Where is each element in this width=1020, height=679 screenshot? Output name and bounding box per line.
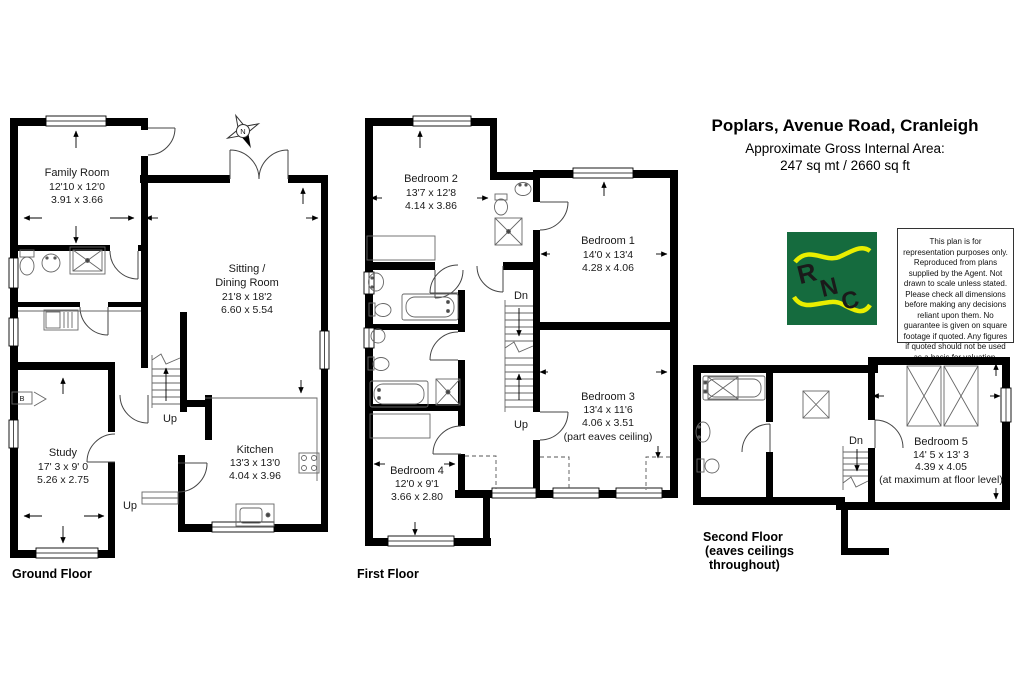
compass: N	[220, 108, 265, 153]
bedroom2-imperial: 13'7 x 12'8	[406, 187, 456, 199]
bedroom5-imperial: 14' 5 x 13' 3	[913, 449, 969, 461]
bedroom4-imperial: 12'0 x 9'1	[395, 478, 439, 490]
door-arc	[742, 424, 770, 452]
second-stairs	[843, 446, 868, 490]
bedroom2-wardrobe	[367, 236, 435, 260]
kitchen-imperial: 13'3 x 13'0	[230, 457, 280, 469]
wardrobe-icon	[944, 366, 978, 426]
ensuite-toilet-icon	[495, 194, 508, 215]
door-arc	[430, 332, 458, 360]
family-room-metric: 3.91 x 3.66	[51, 194, 103, 206]
kitchen-metric: 4.04 x 3.96	[229, 470, 281, 482]
door-arc	[477, 266, 503, 292]
bedroom3-imperial: 13'4 x 11'6	[583, 404, 633, 416]
bedroom4-metric: 3.66 x 2.80	[391, 491, 443, 503]
second-stairs-dn-label: Dn	[849, 435, 863, 447]
floorplans: N Family Room 12'10 x 12'0 3.91 x 3.66 S…	[0, 0, 1020, 679]
sitting-room-metric: 6.60 x 5.54	[221, 304, 273, 316]
boiler-label: B	[19, 394, 24, 403]
eaves-dashed-lines	[465, 456, 670, 490]
bedroom5-name: Bedroom 5	[914, 436, 968, 448]
door-arc	[120, 395, 148, 423]
kitchen-name: Kitchen	[237, 444, 274, 456]
first-stairs-dn-label: Dn	[514, 290, 528, 302]
bedroom3-metric: 4.06 x 3.51	[582, 417, 634, 429]
door-arc	[87, 434, 115, 462]
sitting-room-name2: Dining Room	[215, 277, 279, 289]
ground-step-up-label: Up	[123, 500, 137, 512]
ground-stairs	[142, 354, 180, 504]
stair-break-line	[843, 477, 868, 487]
ground-stairs-up-label: Up	[163, 413, 177, 425]
sitting-room-imperial: 21'8 x 18'2	[222, 291, 272, 303]
french-doors	[230, 150, 288, 179]
landing-shower-icon	[803, 391, 829, 418]
basin-icon	[42, 254, 60, 272]
second-doors	[742, 420, 903, 452]
shower-over-bath-icon	[708, 377, 738, 399]
bedroom5-metric: 4.39 x 4.05	[915, 461, 967, 473]
second-floor-label-2: (eaves ceilings	[705, 544, 794, 558]
bath1-bath-icon	[402, 294, 458, 320]
family-room-name: Family Room	[45, 167, 110, 179]
second-windows	[1001, 388, 1011, 422]
bedroom3-name: Bedroom 3	[581, 391, 635, 403]
shower-icon	[70, 247, 105, 274]
bedroom1-metric: 4.28 x 4.06	[582, 262, 634, 274]
first-floor-label: First Floor	[357, 567, 419, 581]
compass-north-label: N	[240, 127, 245, 136]
ensuite-basin-icon	[515, 183, 531, 196]
door-arc	[875, 420, 903, 448]
study-name: Study	[49, 447, 78, 459]
study-metric: 5.26 x 2.75	[37, 474, 89, 486]
utility-sink-icon	[18, 310, 141, 330]
toilet-icon	[20, 250, 34, 275]
study-imperial: 17' 3 x 9' 0	[38, 461, 88, 473]
ground-floor-plan: N Family Room 12'10 x 12'0 3.91 x 3.66 S…	[9, 108, 329, 581]
bedroom4-name: Bedroom 4	[390, 465, 444, 477]
ensuite-shower-icon	[495, 218, 522, 245]
second-floor-label-1: Second Floor	[703, 530, 783, 544]
bedroom2-metric: 4.14 x 3.86	[405, 200, 457, 212]
first-stairs-up-label: Up	[514, 419, 528, 431]
ground-floor-label: Ground Floor	[12, 567, 92, 581]
bath2-shower-icon	[436, 379, 460, 405]
first-floor-plan: Bedroom 2 13'7 x 12'8 4.14 x 3.86 Bedroo…	[357, 116, 678, 581]
wardrobe-icon	[907, 366, 941, 426]
hob-icon	[299, 453, 319, 473]
bedroom2-name: Bedroom 2	[404, 173, 458, 185]
door-arc	[148, 128, 175, 155]
bedroom5-note: (at maximum at floor level)	[879, 474, 1003, 486]
bedroom1-name: Bedroom 1	[581, 235, 635, 247]
stair-break-line	[505, 342, 533, 352]
bedroom3-note: (part eaves ceiling)	[564, 431, 653, 443]
floorplan-page: Poplars, Avenue Road, Cranleigh Approxim…	[0, 0, 1020, 679]
second-floor-label-3: throughout)	[709, 558, 780, 572]
door-arc	[110, 251, 138, 279]
door-arc	[540, 202, 568, 230]
sitting-room-name1: Sitting /	[229, 263, 267, 275]
bedroom4-bed	[370, 414, 430, 438]
door-arc	[433, 426, 461, 454]
second-floor-plan: Bedroom 5 14' 5 x 13' 3 4.39 x 4.05 (at …	[693, 357, 1011, 572]
family-room-imperial: 12'10 x 12'0	[49, 181, 105, 193]
bath2-bath-icon	[370, 381, 428, 407]
bedroom1-imperial: 14'0 x 13'4	[583, 249, 633, 261]
stair-break-line	[152, 354, 180, 364]
